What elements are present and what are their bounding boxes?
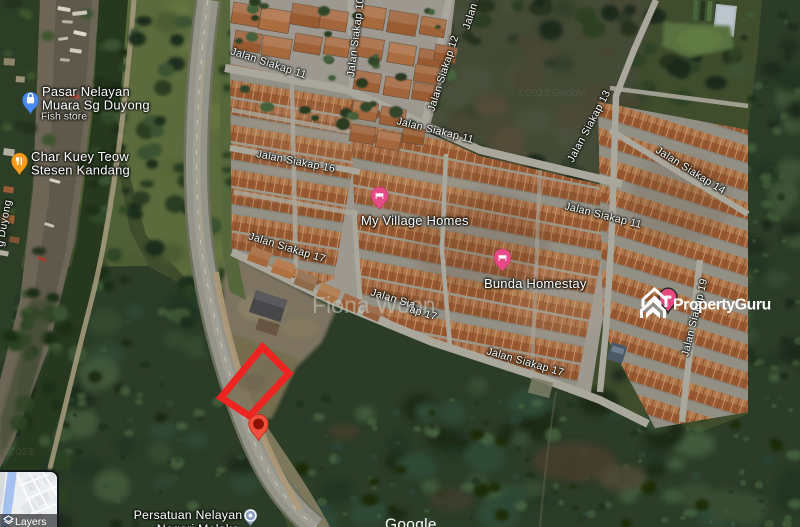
- svg-text:My Village Homes: My Village Homes: [361, 213, 469, 228]
- svg-text:Persatuan Nelayan: Persatuan Nelayan: [134, 508, 243, 522]
- svg-text:Negeri Melaka: Negeri Melaka: [157, 522, 240, 527]
- svg-text:Bunda Homestay: Bunda Homestay: [484, 276, 587, 291]
- svg-text:Fish store: Fish store: [41, 111, 87, 123]
- svg-text:Google: Google: [385, 517, 437, 527]
- svg-text:©2023: ©2023: [2, 446, 33, 458]
- svg-text:PropertyGuru: PropertyGuru: [673, 297, 771, 314]
- svg-text:©2023 Google: ©2023 Google: [518, 87, 586, 99]
- svg-text:Stesen Kandang: Stesen Kandang: [31, 163, 130, 178]
- svg-text:Fiona Woon: Fiona Woon: [312, 292, 436, 318]
